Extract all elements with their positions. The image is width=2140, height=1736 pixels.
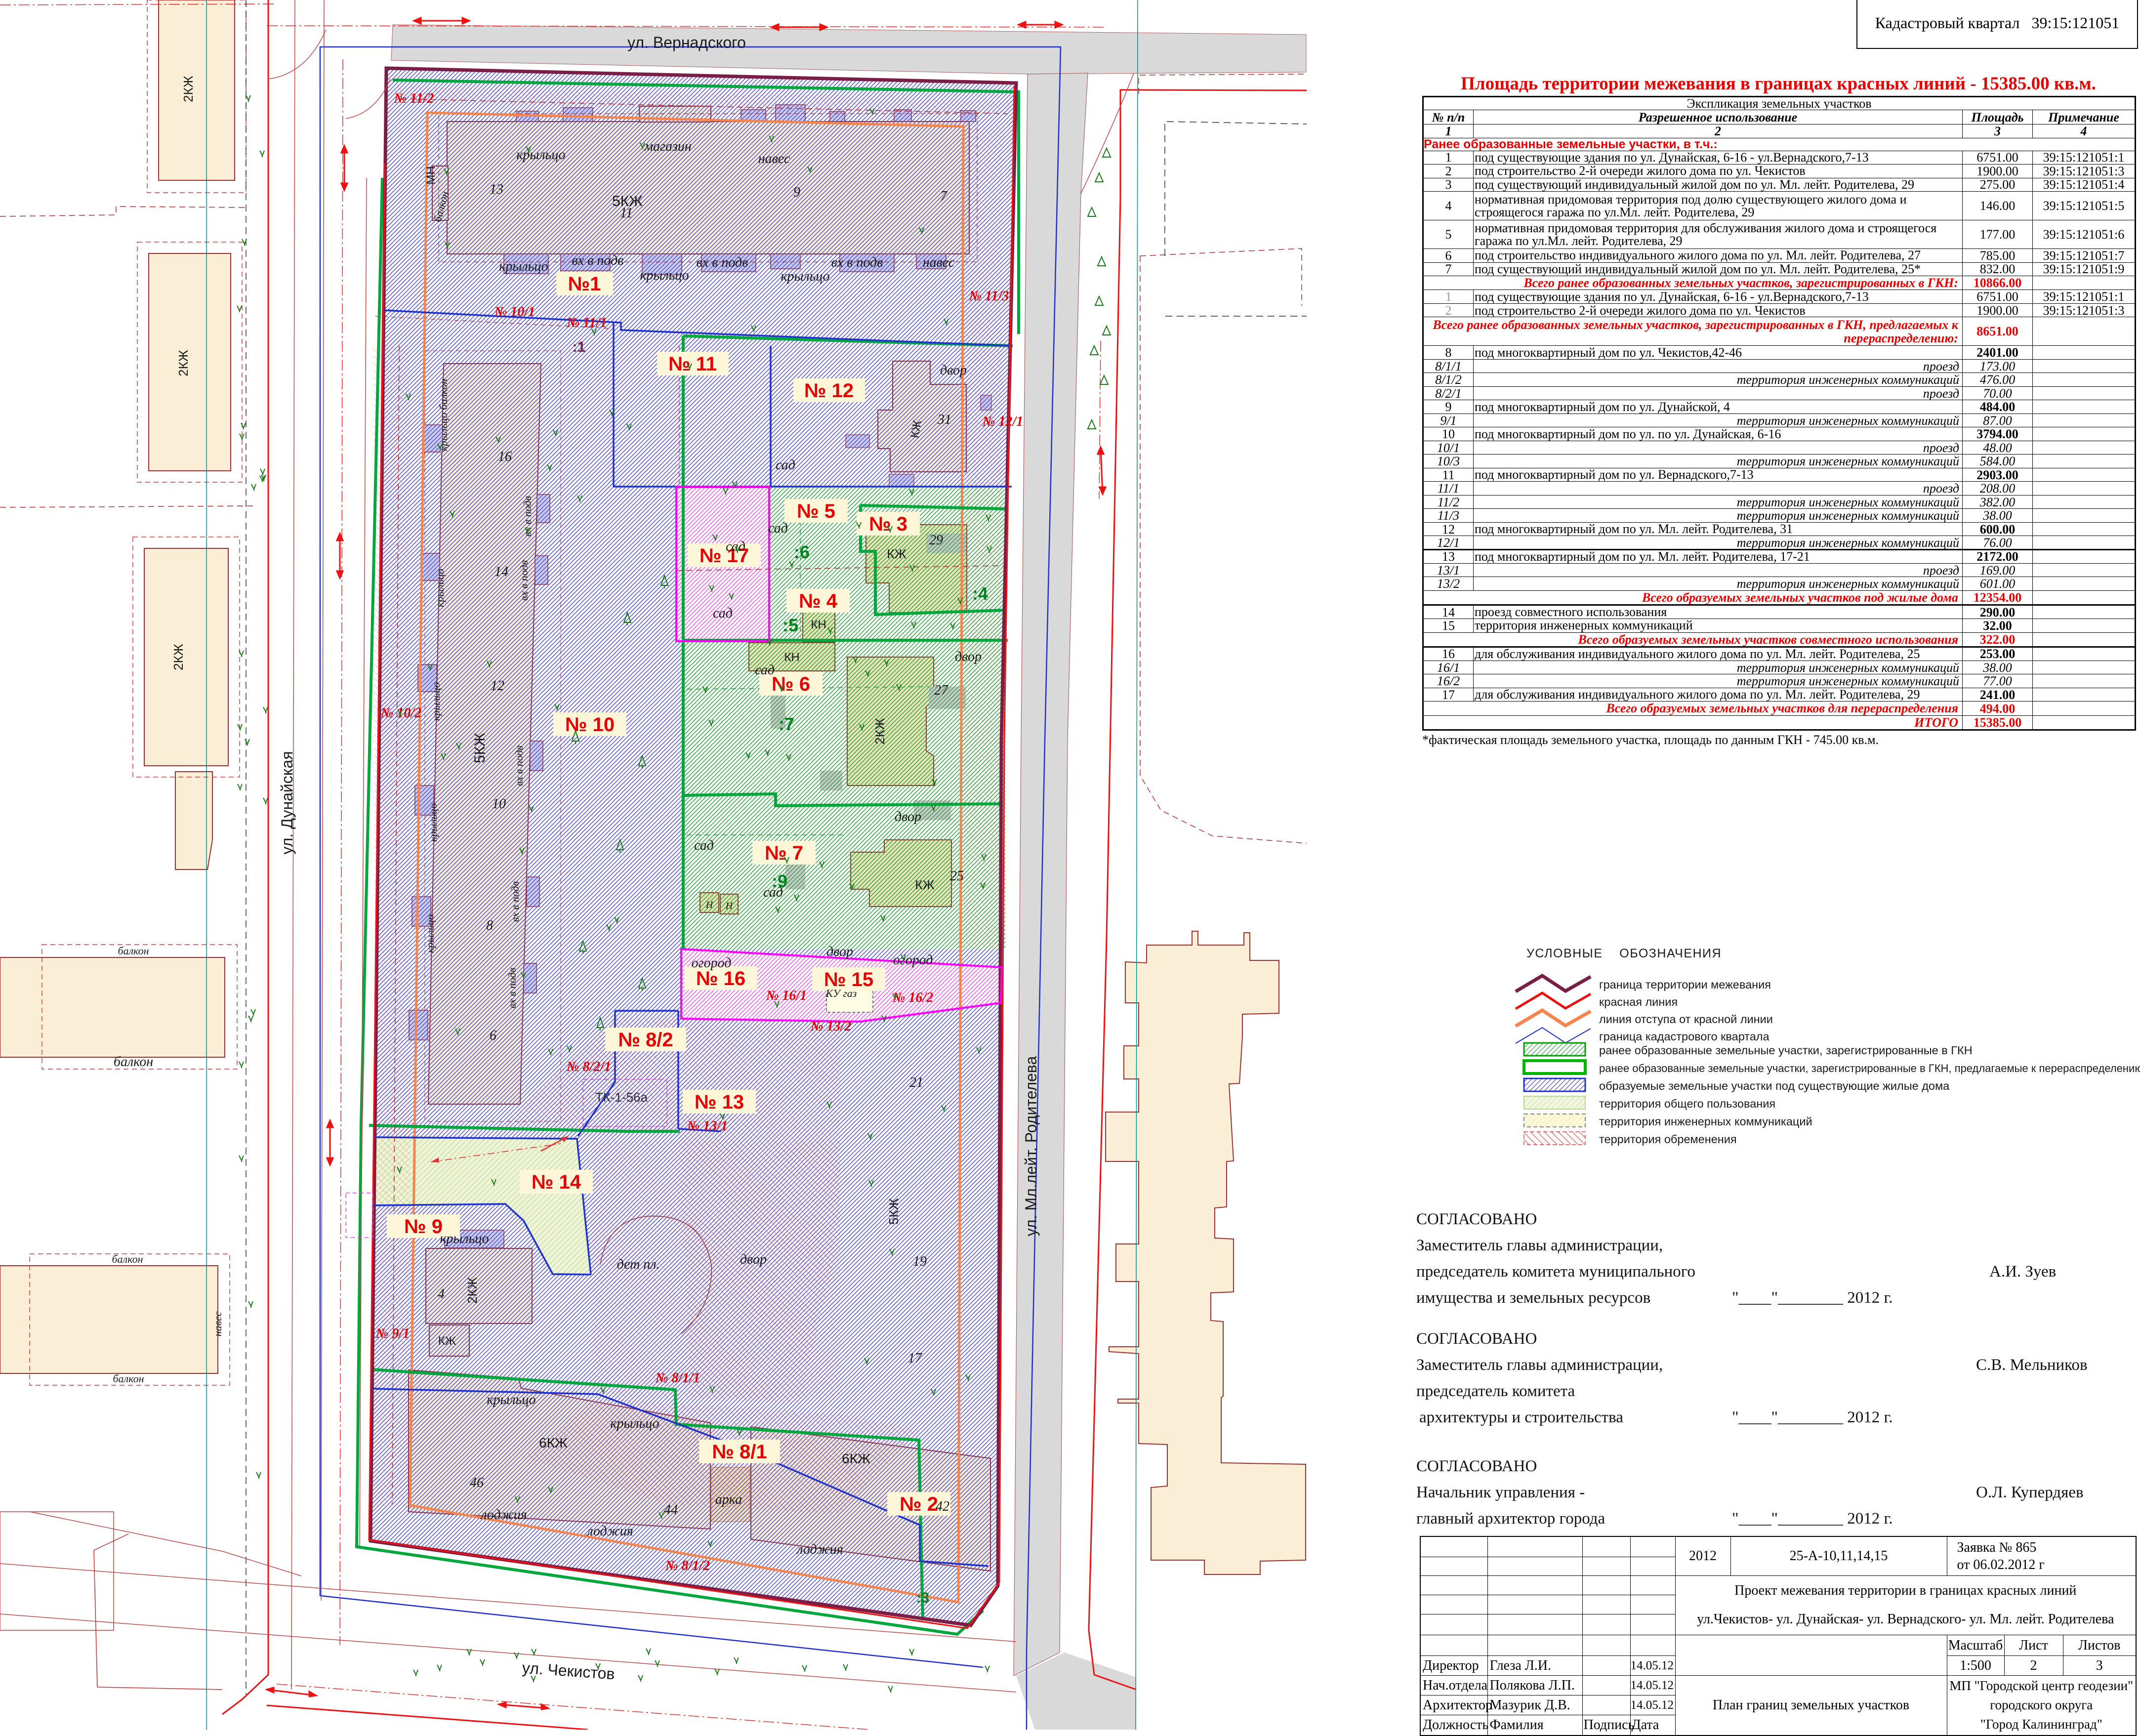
svg-text:46: 46 <box>470 1475 484 1490</box>
svg-text:2КЖ: 2КЖ <box>465 1277 480 1304</box>
svg-text:ул. Чекистов: ул. Чекистов <box>522 1659 616 1683</box>
svg-text:сад: сад <box>763 885 783 900</box>
svg-text:2КЖ: 2КЖ <box>872 718 887 744</box>
svg-text:КУ газ: КУ газ <box>825 987 857 999</box>
svg-text:ул. Дунайская: ул. Дунайская <box>278 751 296 854</box>
svg-text:лоджия: лоджия <box>796 1542 843 1557</box>
svg-text:крыльцо: крыльцо <box>424 914 436 953</box>
svg-text:44: 44 <box>664 1502 678 1518</box>
svg-text:крыльцо: крыльцо <box>487 1392 535 1407</box>
svg-text:2КЖ: 2КЖ <box>176 350 191 376</box>
svg-text:граница кадастрового квартала: граница кадастрового квартала <box>1599 1030 1770 1043</box>
svg-text:6КЖ: 6КЖ <box>539 1435 568 1450</box>
svg-text:№ 10/1: № 10/1 <box>494 304 535 320</box>
svg-text:№ 11/3: № 11/3 <box>969 289 1009 304</box>
svg-text:двор: двор <box>826 944 853 959</box>
svg-text:граница территории межевания: граница территории межевания <box>1599 978 1771 991</box>
svg-text::5: :5 <box>782 615 798 635</box>
svg-text:25: 25 <box>950 868 964 884</box>
svg-text:вх в подв: вх в подв <box>697 255 748 270</box>
svg-text:балкон: балкон <box>114 1054 153 1070</box>
svg-text:17: 17 <box>908 1351 922 1366</box>
svg-text:31: 31 <box>937 412 951 427</box>
svg-text:2КЖ: 2КЖ <box>181 76 196 102</box>
svg-text:красная линия: красная линия <box>1599 995 1678 1008</box>
svg-text:№ 8/2: № 8/2 <box>618 1029 673 1051</box>
svg-text:ранее образованные земельные у: ранее образованные земельные участки, за… <box>1599 1062 2140 1075</box>
svg-text:крыльцо: крыльцо <box>499 259 548 274</box>
svg-text:№ 11: № 11 <box>668 353 717 375</box>
svg-text:№ 4: № 4 <box>799 590 838 612</box>
svg-text:крыльцо: крыльцо <box>516 147 565 163</box>
svg-text:5КЖ: 5КЖ <box>612 193 643 209</box>
svg-text:сад: сад <box>776 457 795 473</box>
svg-text:вх в подв: вх в подв <box>506 967 518 1008</box>
svg-text:образуемые земельные участки п: образуемые земельные участки под существ… <box>1599 1079 1950 1092</box>
svg-text:линия отступа от красной линии: линия отступа от красной линии <box>1599 1013 1773 1026</box>
svg-text:7: 7 <box>940 189 947 204</box>
svg-text:балкон: балкон <box>118 945 149 957</box>
svg-text:№ 8/1/1: № 8/1/1 <box>655 1370 700 1386</box>
svg-text:10: 10 <box>492 796 506 812</box>
svg-text:КЖ: КЖ <box>887 546 906 561</box>
svg-text:огород: огород <box>692 955 732 971</box>
svg-text:№ 8/1/2: № 8/1/2 <box>665 1558 710 1573</box>
svg-text:19: 19 <box>913 1254 927 1269</box>
svg-text:крыльцо: крыльцо <box>430 682 442 721</box>
svg-text:крыльцо: крыльцо <box>440 1231 489 1246</box>
svg-text::6: :6 <box>794 542 810 562</box>
svg-text:№1: №1 <box>568 273 601 295</box>
svg-text:8: 8 <box>486 918 493 933</box>
svg-text:№ 13/1: № 13/1 <box>687 1118 728 1134</box>
svg-text:сад: сад <box>755 662 775 678</box>
svg-text:крыльцо: крыльцо <box>434 569 446 607</box>
svg-text:лоджия: лоджия <box>480 1507 527 1523</box>
svg-text:21: 21 <box>909 1075 923 1090</box>
svg-text:крыльцо балкон: крыльцо балкон <box>437 379 450 452</box>
svg-text:балкон: балкон <box>112 1253 143 1265</box>
svg-text::7: :7 <box>779 714 794 734</box>
svg-text:№ 13/2: № 13/2 <box>810 1019 851 1034</box>
svg-text:№ 14: № 14 <box>532 1171 581 1193</box>
svg-text:16: 16 <box>498 449 512 464</box>
svg-text:двор: двор <box>740 1252 767 1267</box>
svg-text:Н: Н <box>705 900 714 910</box>
svg-text:ТК-1-56а: ТК-1-56а <box>595 1090 648 1105</box>
svg-text:12: 12 <box>491 678 504 694</box>
svg-text:двор: двор <box>955 649 982 664</box>
svg-text:МН: МН <box>424 166 438 184</box>
svg-text:Н: Н <box>725 901 734 911</box>
svg-text:КЖ: КЖ <box>915 877 934 892</box>
svg-text:4: 4 <box>438 1286 445 1302</box>
svg-text:сад: сад <box>713 606 733 621</box>
svg-text:№ 13: № 13 <box>695 1091 744 1113</box>
svg-text::3: :3 <box>916 1590 930 1606</box>
svg-text:сад: сад <box>694 838 714 853</box>
svg-text:№ 16: № 16 <box>696 968 745 990</box>
svg-text:9: 9 <box>793 185 800 200</box>
svg-text:№ 7: № 7 <box>765 842 803 864</box>
svg-text:вх в подв: вх в подв <box>521 496 534 537</box>
svg-text:6КЖ: 6КЖ <box>842 1451 870 1466</box>
svg-text:балкон: балкон <box>113 1372 144 1385</box>
svg-text:крыльцо: крыльцо <box>427 803 439 842</box>
svg-text:№ 16/2: № 16/2 <box>892 990 933 1005</box>
svg-text:двор: двор <box>895 809 921 825</box>
svg-text::4: :4 <box>972 583 988 604</box>
svg-text:сад: сад <box>768 521 788 536</box>
svg-text:№ 3: № 3 <box>869 513 907 535</box>
svg-text:№ 9: № 9 <box>404 1216 443 1238</box>
svg-text:территория обременения: территория обременения <box>1599 1133 1737 1146</box>
svg-text:огород: огород <box>893 952 933 968</box>
svg-text:№ 16/1: № 16/1 <box>766 988 807 1003</box>
svg-text:магазин: магазин <box>644 139 692 154</box>
svg-text:14: 14 <box>494 564 508 579</box>
svg-text:27: 27 <box>934 683 948 698</box>
svg-text:ул. Вернадского: ул. Вернадского <box>627 34 746 51</box>
svg-text:№ 8/2/1: № 8/2/1 <box>566 1059 611 1075</box>
svg-text:КН: КН <box>784 651 799 664</box>
svg-text:№ 6: № 6 <box>772 673 810 695</box>
svg-text:№ 9/1: № 9/1 <box>375 1326 410 1341</box>
svg-text:№ 11/2: № 11/2 <box>394 91 434 106</box>
svg-text::1: :1 <box>573 339 586 355</box>
svg-text:№ 10: № 10 <box>565 714 615 736</box>
svg-text:крыльцо: крыльцо <box>640 268 689 283</box>
svg-text:дет пл.: дет пл. <box>617 1257 660 1272</box>
svg-text:вх в подв: вх в подв <box>513 745 525 786</box>
svg-text:навес: навес <box>923 255 955 270</box>
svg-text:лоджия: лоджия <box>586 1524 633 1539</box>
svg-text:арка: арка <box>715 1492 742 1507</box>
svg-text:5КЖ: 5КЖ <box>472 733 488 763</box>
svg-text:вх в подв: вх в подв <box>572 253 624 268</box>
svg-text:крыльцо: крыльцо <box>610 1416 659 1431</box>
svg-text:территория общего пользования: территория общего пользования <box>1599 1097 1775 1110</box>
svg-text:вх в подв: вх в подв <box>509 881 521 922</box>
svg-text:вх в подв: вх в подв <box>831 255 883 270</box>
svg-text:навес: навес <box>758 151 790 166</box>
svg-text:6: 6 <box>490 1028 496 1043</box>
svg-text:42: 42 <box>936 1499 949 1514</box>
svg-text:КН: КН <box>811 618 826 631</box>
svg-text:ул. Мл.лейт. Родителева: ул. Мл.лейт. Родителева <box>1022 1056 1040 1236</box>
svg-text:вх в подв: вх в подв <box>518 560 530 601</box>
svg-text:5КЖ: 5КЖ <box>886 1198 901 1225</box>
svg-text:№ 5: № 5 <box>797 500 835 522</box>
svg-text:№ 12: № 12 <box>804 380 854 402</box>
svg-text:территория инженерных коммуник: территория инженерных коммуникаций <box>1599 1115 1812 1128</box>
svg-text:№ 12/1: № 12/1 <box>982 414 1023 429</box>
svg-text:КЖ: КЖ <box>438 1334 456 1348</box>
svg-text:29: 29 <box>929 533 943 548</box>
svg-text:крыльцо: крыльцо <box>781 269 829 284</box>
svg-text:№ 11/1: № 11/1 <box>567 315 607 331</box>
svg-text:№ 2: № 2 <box>900 1493 938 1515</box>
svg-text:ранее образованные земельные у: ранее образованные земельные участки, за… <box>1599 1044 1973 1057</box>
svg-text:двор: двор <box>940 363 967 378</box>
svg-text:навес: навес <box>211 1311 224 1336</box>
svg-text:2КЖ: 2КЖ <box>171 644 186 670</box>
svg-text:№ 8/1: № 8/1 <box>712 1441 767 1463</box>
svg-text:13: 13 <box>490 182 503 197</box>
